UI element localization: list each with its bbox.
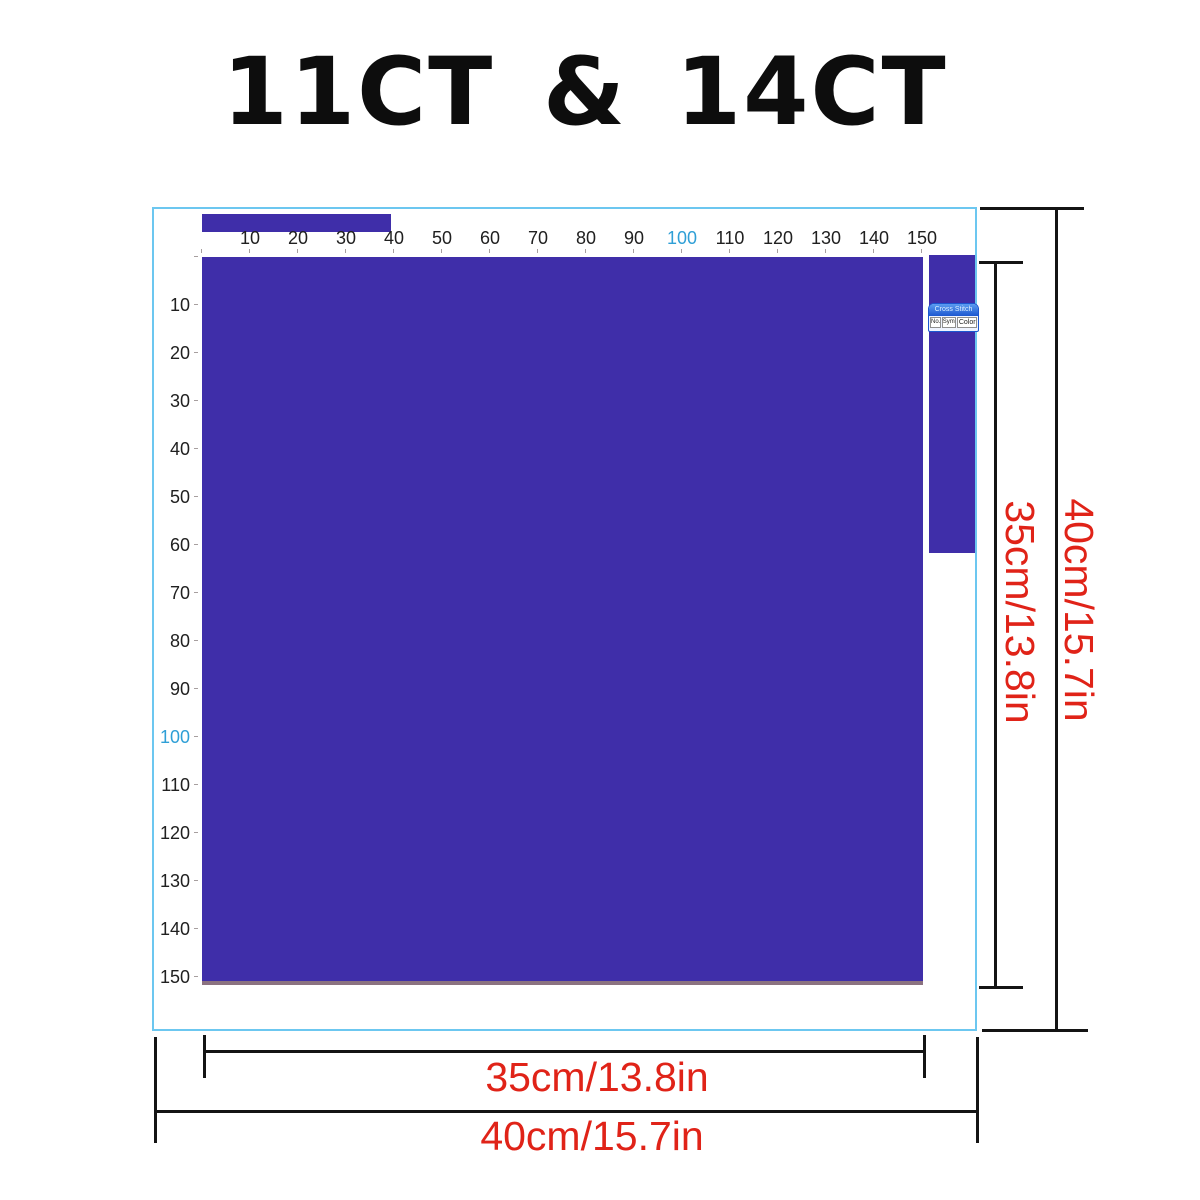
left-ruler-number: 70 <box>138 583 190 603</box>
left-ruler-number: 110 <box>138 775 190 795</box>
left-ruler-number-highlight: 100 <box>138 727 190 747</box>
left-ruler-number: 50 <box>138 487 190 507</box>
dim-tick-inner-width-right <box>923 1035 926 1078</box>
left-ruler-number: 90 <box>138 679 190 699</box>
dim-cap-inner-height-bottom <box>979 986 1023 989</box>
dim-cap-outer-height-top <box>980 207 1084 210</box>
dim-tick-outer-width-left <box>154 1037 157 1143</box>
side-partial-stitch-bar <box>929 255 975 553</box>
dim-cap-inner-height-top <box>979 261 1023 264</box>
pattern-key-window: Cross Stitch No. Symbol Color <box>928 303 979 332</box>
left-ruler-number: 150 <box>138 967 190 987</box>
dim-line-inner-width <box>204 1050 926 1053</box>
pattern-key-columns: No. Symbol Color <box>929 316 978 329</box>
dim-cap-outer-height-bottom <box>982 1029 1088 1032</box>
left-ruler-number: 130 <box>138 871 190 891</box>
left-ruler-number: 120 <box>138 823 190 843</box>
left-ruler-ticks <box>194 209 198 981</box>
top-ruler-ticks <box>154 249 926 253</box>
left-ruler-number: 80 <box>138 631 190 651</box>
top-ruler-number: 150 <box>892 228 952 248</box>
label-inner-width: 35cm/13.8in <box>485 1056 708 1098</box>
cross-stitch-size-diagram: 11CT & 14CT 10 20 30 40 50 60 70 80 90 1… <box>0 0 1200 1200</box>
design-area-square <box>202 257 923 985</box>
left-ruler-number: 20 <box>138 343 190 363</box>
label-outer-width: 40cm/15.7in <box>480 1115 703 1157</box>
label-inner-height: 35cm/13.8in <box>999 500 1041 723</box>
pattern-key-titlebar: Cross Stitch <box>929 304 978 316</box>
left-ruler-number: 10 <box>138 295 190 315</box>
label-outer-height: 40cm/15.7in <box>1058 498 1100 721</box>
dim-tick-inner-width-left <box>203 1035 206 1078</box>
left-ruler-number: 40 <box>138 439 190 459</box>
left-ruler-number: 140 <box>138 919 190 939</box>
pattern-key-col-color: Color <box>957 317 977 328</box>
pattern-key-col-no: No. <box>930 317 941 328</box>
left-ruler-number: 60 <box>138 535 190 555</box>
dim-tick-outer-width-right <box>976 1037 979 1143</box>
page-title: 11CT & 14CT <box>0 38 1170 147</box>
left-ruler-number: 30 <box>138 391 190 411</box>
pattern-key-col-symbol: Symbol <box>942 317 957 328</box>
